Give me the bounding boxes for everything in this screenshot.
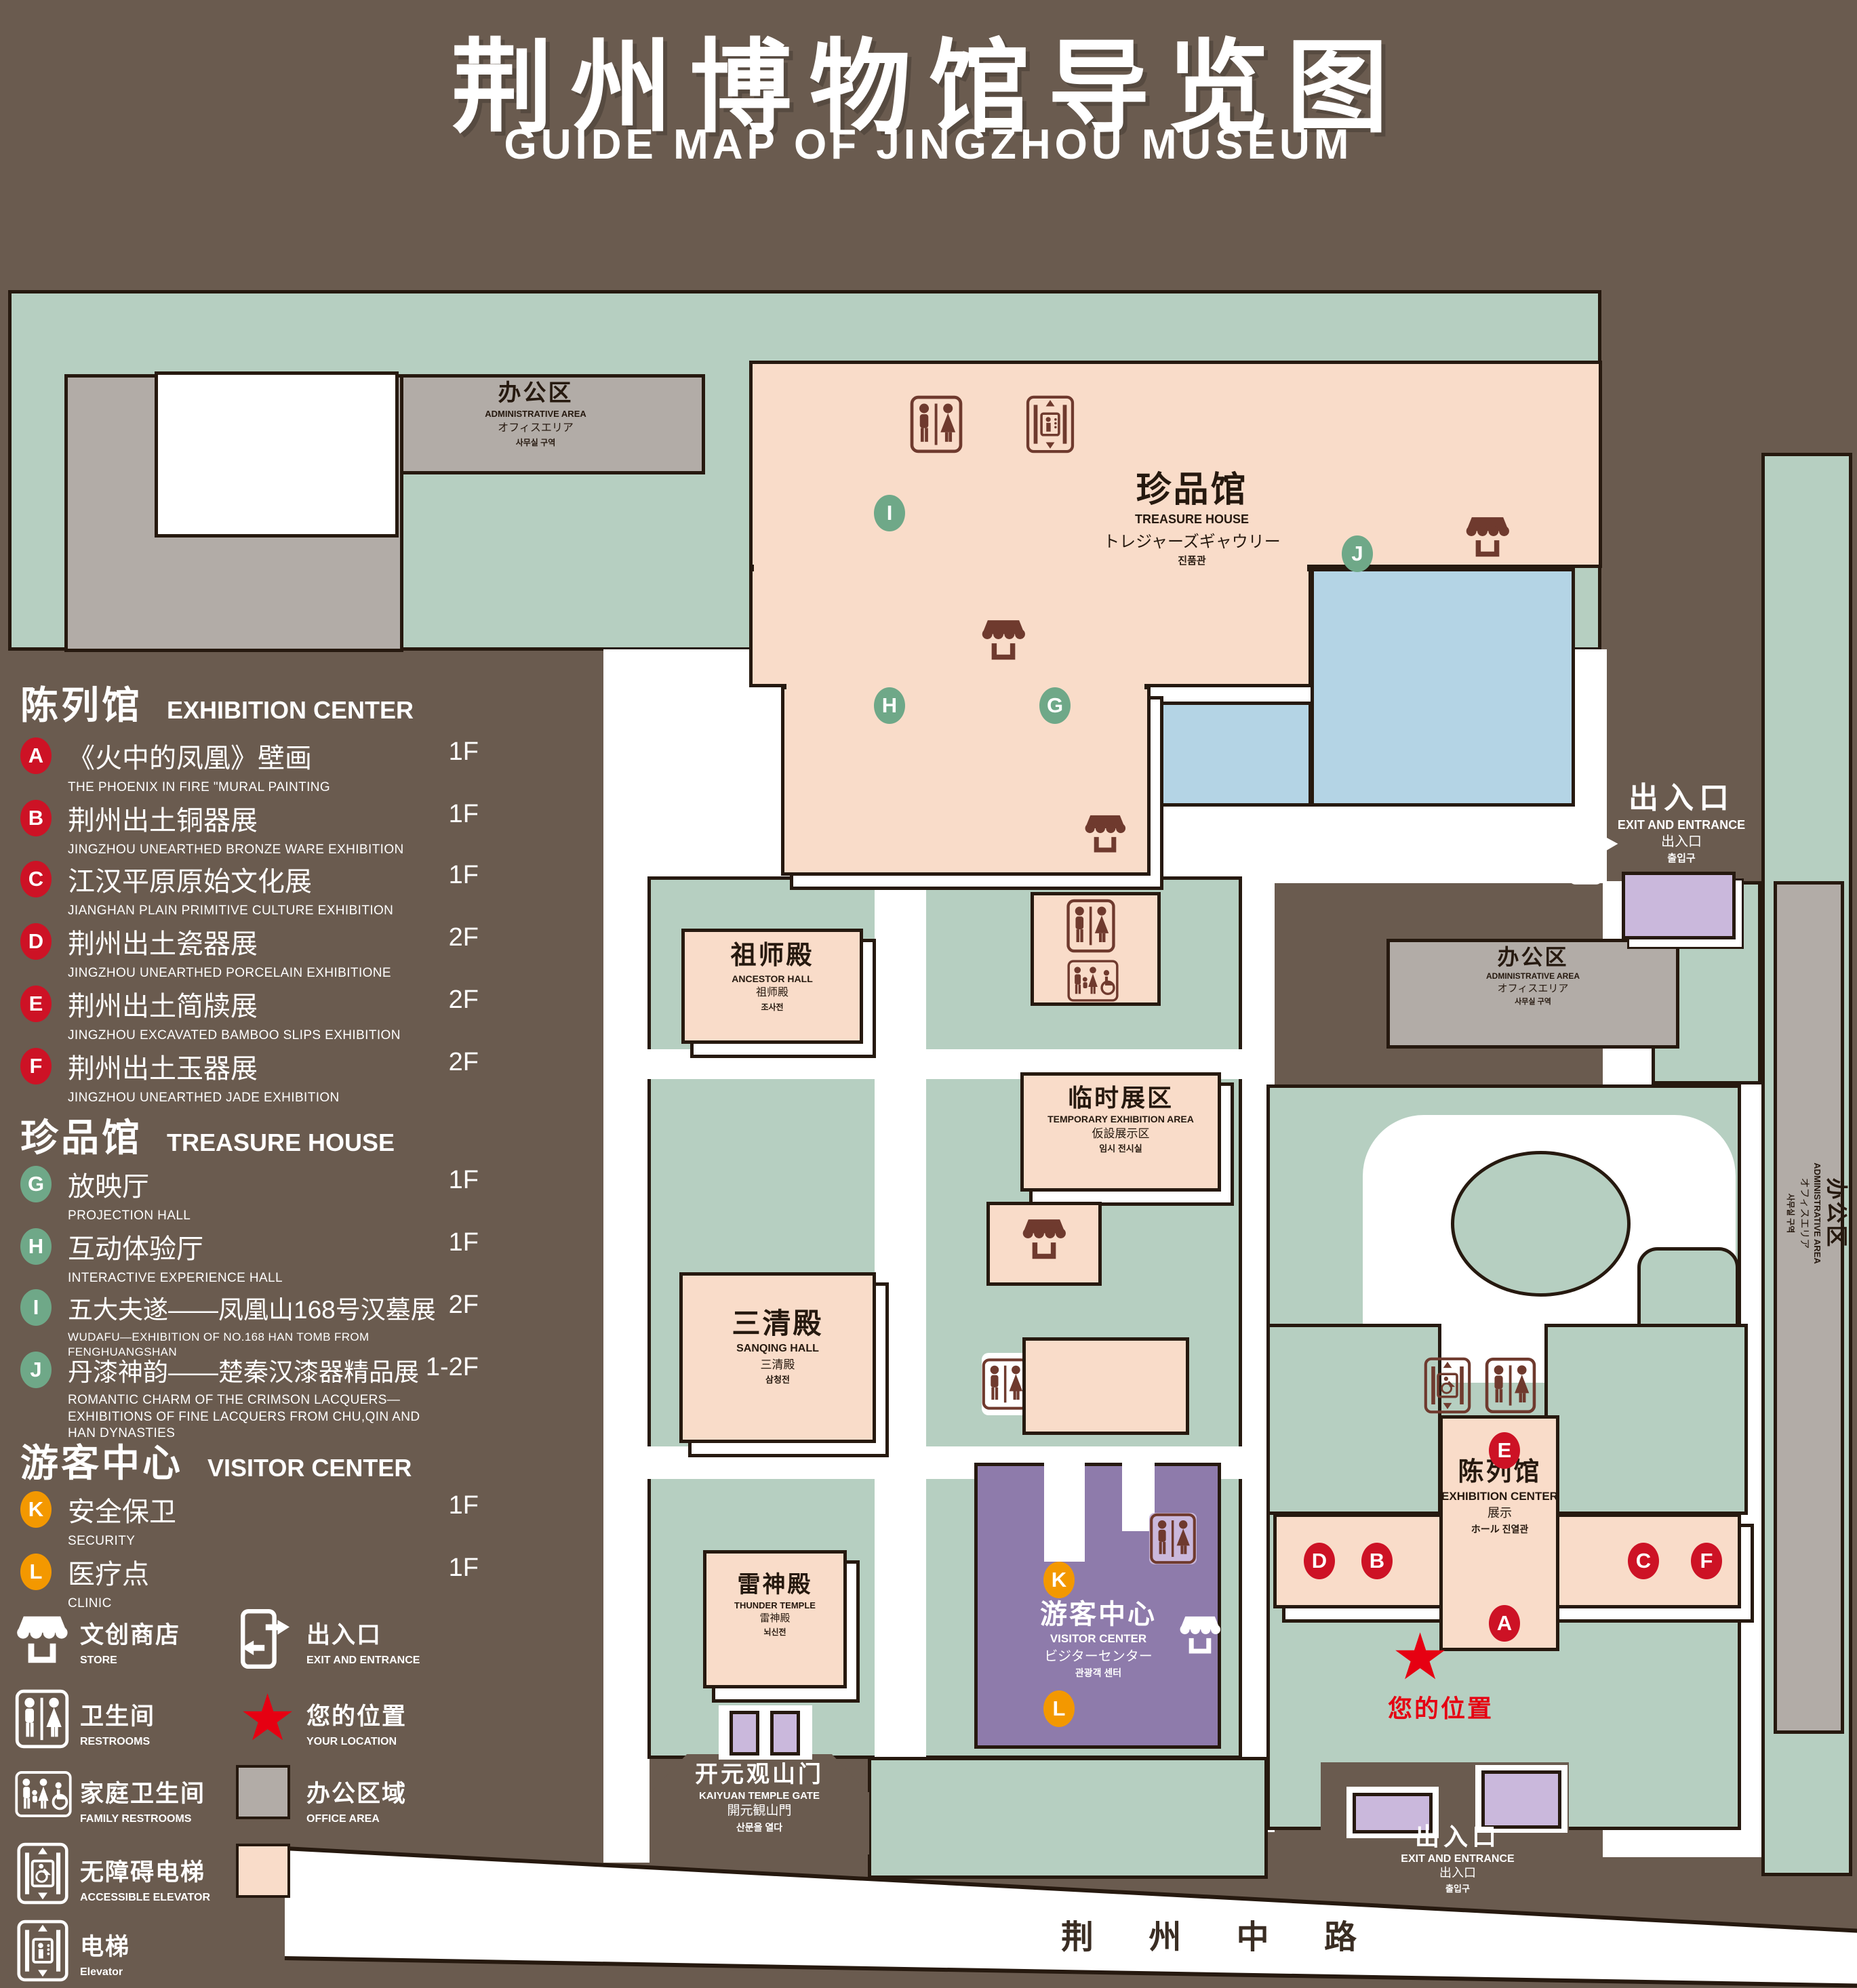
legend-item-G: G放映厅1F PROJECTION HALL bbox=[20, 1164, 479, 1225]
store-icon bbox=[15, 1612, 69, 1669]
legend-item-L: L医疗点1F CLINIC bbox=[20, 1552, 479, 1612]
legend-item-K: K安全保卫1F SECURITY bbox=[20, 1490, 479, 1550]
legend-symbol-office-area: 办公区域 OFFICE AREA bbox=[306, 1774, 407, 1825]
legend-marker-E: E bbox=[20, 986, 52, 1022]
legend-symbol-elevator: 电梯 Elevator bbox=[80, 1928, 130, 1979]
legend-symbol-exit: 出入口 EXIT AND ENTRANCE bbox=[306, 1616, 420, 1667]
map-marker-D: D bbox=[1304, 1543, 1335, 1579]
legend-symbol-restrooms: 卫生间 RESTROOMS bbox=[80, 1697, 155, 1748]
elevator-icon bbox=[1025, 395, 1075, 453]
legend-item-B: B荆州出土铜器展1F JINGZHOU UNEARTHED BRONZE WAR… bbox=[20, 798, 479, 859]
legend-marker-A: A bbox=[20, 737, 52, 774]
guide-map-page: { "title": { "cn": "荆州博物馆导览图", "en": "GU… bbox=[0, 0, 1857, 1985]
legend-marker-F: F bbox=[20, 1048, 52, 1084]
map-marker-E: E bbox=[1489, 1432, 1520, 1469]
visitor-center-label: 游客中心 VISITOR CENTER ビジターセンター 관광객 센터 bbox=[990, 1598, 1207, 1679]
legend-section-exhibition-header: 陈列馆 EXHIBITION CENTER bbox=[20, 675, 536, 730]
path-left-vertical bbox=[603, 649, 650, 1863]
store-icon bbox=[1464, 512, 1511, 563]
store-icon bbox=[1178, 1612, 1222, 1659]
legend-symbol-family-restrooms: 家庭卫生间 FAMILY RESTROOMS bbox=[80, 1774, 205, 1825]
map-marker-I: I bbox=[874, 495, 905, 531]
map-marker-B: B bbox=[1361, 1543, 1393, 1579]
legend-symbol-location: 您的位置 YOUR LOCATION bbox=[306, 1697, 407, 1748]
visitor-center-notch bbox=[1044, 1460, 1085, 1562]
legend-item-D: D荆州出土瓷器展2F JINGZHOU UNEARTHED PORCELAIN … bbox=[20, 922, 479, 982]
store-icon bbox=[980, 615, 1026, 666]
road-name-label: 荆 州 中 路 bbox=[1003, 1910, 1437, 1957]
map-marker-J: J bbox=[1342, 535, 1373, 572]
your-location-star-icon: ★ bbox=[1391, 1625, 1449, 1690]
legend-symbol-store: 文创商店 STORE bbox=[80, 1616, 180, 1667]
pond-west bbox=[1153, 702, 1312, 807]
exit-icon bbox=[1566, 821, 1619, 889]
restroom-icon bbox=[1485, 1357, 1536, 1414]
elevator-icon bbox=[16, 1920, 69, 1982]
restroom-icon bbox=[15, 1689, 69, 1749]
gate-post bbox=[730, 1711, 759, 1756]
gate-post bbox=[770, 1711, 800, 1756]
legend-item-C: C江汉平原原始文化展1F JIANGHAN PLAIN PRIMITIVE CU… bbox=[20, 859, 479, 920]
legend-item-I: I五大夫遂——凤凰山168号汉墓展2F WUDAFU—EXHIBITION OF… bbox=[20, 1289, 479, 1360]
accessible-elevator-icon bbox=[16, 1842, 69, 1905]
legend-marker-D: D bbox=[20, 923, 52, 960]
ancestor-hall-label: 祖师殿 ANCESTOR HALL 祖师殿 조사전 bbox=[685, 941, 860, 1012]
legend-item-A: A《火中的凤凰》壁画1F THE PHOENIX IN FIRE "MURAL … bbox=[20, 736, 479, 796]
legend-marker-C: C bbox=[20, 861, 52, 897]
treasure-house-building-lower bbox=[749, 568, 1312, 687]
map-marker-G: G bbox=[1039, 687, 1071, 724]
legend-marker-K: K bbox=[20, 1491, 52, 1528]
your-location-label: 您的位置 bbox=[1339, 1689, 1542, 1724]
legend-item-J: J丹漆神韵——楚秦汉漆器精品展1-2F ROMANTIC CHARM OF TH… bbox=[20, 1352, 479, 1442]
legend-item-F: F荆州出土玉器展2F JINGZHOU UNEARTHED JADE EXHIB… bbox=[20, 1047, 479, 1107]
legend-section-treasure-header: 珍品馆 TREASURE HOUSE bbox=[20, 1108, 536, 1162]
exhibition-center-label: 陈列馆 EXHIBITION CENTER 展示 ホール 진열관 bbox=[1356, 1457, 1643, 1535]
map-marker-H: H bbox=[874, 687, 905, 724]
garden-island bbox=[1451, 1151, 1631, 1297]
map-marker-L: L bbox=[1043, 1690, 1075, 1727]
map-marker-K: K bbox=[1043, 1562, 1075, 1598]
family-restroom-icon bbox=[15, 1766, 72, 1822]
legend-marker-H: H bbox=[20, 1228, 52, 1265]
admin-mid-label: 办公区 ADMINISTRATIVE AREA オフィスエリア 사무실 구역 bbox=[1400, 944, 1666, 1007]
legend-marker-G: G bbox=[20, 1166, 52, 1202]
south-hall-building bbox=[1022, 1337, 1189, 1435]
gate-building-se bbox=[1481, 1770, 1561, 1829]
legend-marker-L: L bbox=[20, 1554, 52, 1590]
restroom-icon bbox=[1149, 1513, 1197, 1564]
gate-building-ne bbox=[1622, 872, 1736, 939]
legend-item-E: E荆州出土简牍展2F JINGZHOU EXCAVATED BAMBOO SLI… bbox=[20, 984, 479, 1044]
legend-symbol-accessible-elevator: 无障碍电梯 ACCESSIBLE ELEVATOR bbox=[80, 1853, 210, 1904]
admin-top-label: 办公区 ADMINISTRATIVE AREA オフィスエリア 사무실 구역 bbox=[407, 380, 664, 447]
family-restroom-icon bbox=[1066, 960, 1120, 1002]
admin-right-label: 办公区 ADMINISTRATIVE AREA オフィスエリア 사무실 구역 bbox=[1768, 1078, 1850, 1349]
pond bbox=[1311, 568, 1575, 807]
admin-courtyard bbox=[155, 371, 399, 537]
treasure-house-seam2 bbox=[786, 681, 1144, 691]
exit-se-label: 出入口 EXIT AND ENTRANCE 出入口 출입구 bbox=[1346, 1822, 1570, 1894]
store-icon bbox=[1021, 1215, 1067, 1265]
page-subtitle: GUIDE MAP OF JINGZHOU MUSEUM bbox=[0, 121, 1857, 169]
lawn-bottom-band bbox=[868, 1757, 1268, 1879]
temporary-exhibition-label: 临时展区 TEMPORARY EXHIBITION AREA 仮設展示区 임시 … bbox=[1022, 1083, 1219, 1154]
legend-section-visitor-header: 游客中心 VISITOR CENTER bbox=[20, 1433, 536, 1488]
display-area-swatch bbox=[236, 1844, 290, 1898]
sanqing-hall-label: 三清殿 SANQING HALL 三清殿 삼청전 bbox=[683, 1307, 873, 1385]
legend-symbol-display-area: 展示区域 DISPLAY AREA bbox=[306, 1853, 407, 1904]
path-plaza-vertical bbox=[875, 876, 926, 1759]
location-star-icon: ★ bbox=[239, 1686, 296, 1751]
legend-marker-I: I bbox=[20, 1289, 52, 1326]
store-icon bbox=[1083, 811, 1127, 858]
map-marker-C: C bbox=[1628, 1543, 1659, 1579]
map-marker-A: A bbox=[1489, 1605, 1520, 1642]
accessible-elevator-icon bbox=[1424, 1357, 1471, 1414]
map-marker-F: F bbox=[1691, 1543, 1722, 1579]
treasure-house-label: 珍品馆 TREASURE HOUSE トレジャーズギャウリー 진품관 bbox=[1017, 469, 1367, 567]
restroom-icon bbox=[1062, 899, 1120, 953]
office-area-swatch bbox=[236, 1765, 290, 1819]
kaiyuan-gate-label: 开元观山门 KAIYUAN TEMPLE GATE 開元観山門 산문을 열다 bbox=[641, 1761, 878, 1833]
restroom-icon bbox=[909, 395, 963, 453]
legend-item-H: H互动体验厅1F INTERACTIVE EXPERIENCE HALL bbox=[20, 1227, 479, 1287]
legend-marker-J: J bbox=[20, 1352, 52, 1388]
thunder-temple-label: 雷神殿 THUNDER TEMPLE 雷神殿 뇌신전 bbox=[705, 1571, 845, 1638]
legend-marker-B: B bbox=[20, 800, 52, 836]
exit-icon bbox=[234, 1609, 291, 1669]
